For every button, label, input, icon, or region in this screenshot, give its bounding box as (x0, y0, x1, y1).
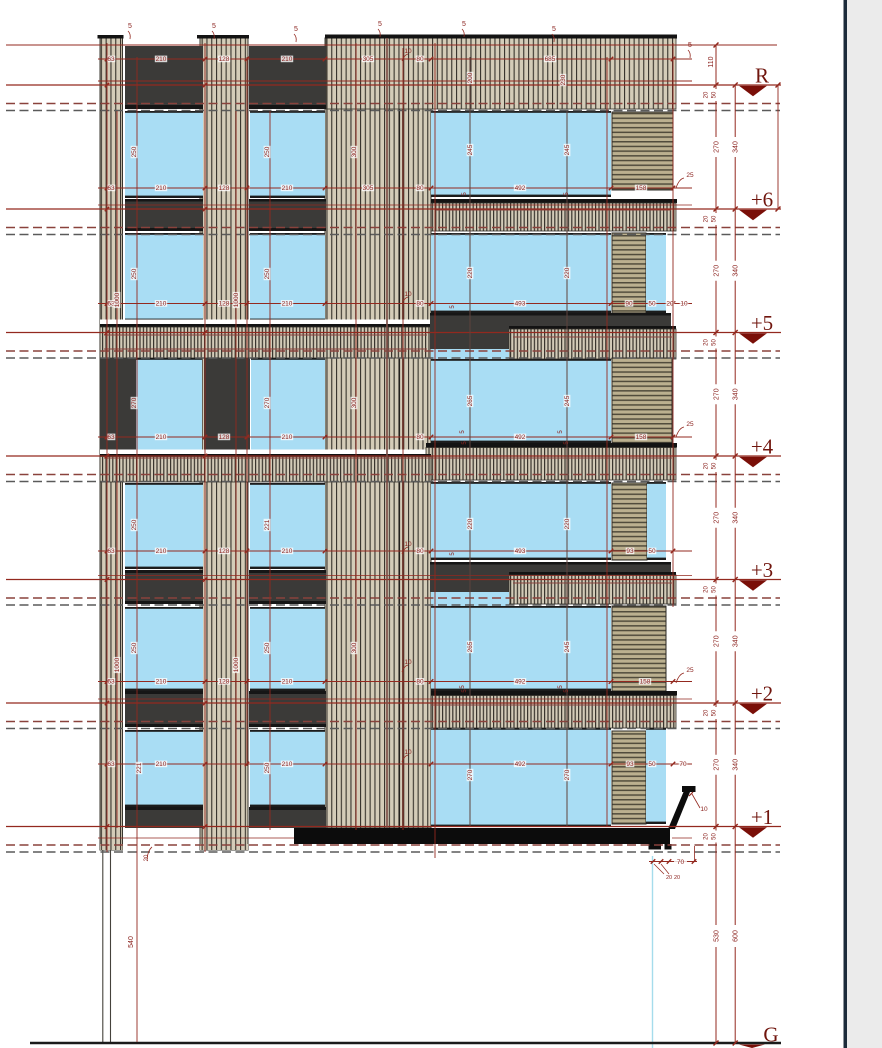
svg-text:+1: +1 (751, 805, 773, 829)
svg-text:80: 80 (416, 301, 424, 308)
svg-text:+5: +5 (751, 311, 773, 335)
svg-text:210: 210 (156, 56, 167, 63)
svg-text:20: 20 (704, 215, 710, 222)
svg-text:128: 128 (219, 548, 230, 555)
svg-text:93: 93 (626, 761, 634, 768)
svg-text:80: 80 (416, 679, 424, 686)
svg-text:1000: 1000 (114, 657, 121, 672)
svg-text:340: 340 (733, 388, 740, 400)
svg-text:50: 50 (712, 586, 718, 593)
svg-text:5: 5 (552, 26, 556, 33)
svg-text:1000: 1000 (233, 657, 240, 672)
svg-text:20: 20 (704, 586, 710, 593)
svg-text:25: 25 (686, 421, 694, 428)
svg-text:93: 93 (626, 548, 634, 555)
svg-text:200: 200 (467, 72, 474, 83)
svg-text:210: 210 (282, 56, 293, 63)
svg-text:340: 340 (733, 512, 740, 524)
svg-text:1000: 1000 (233, 292, 240, 307)
svg-text:270: 270 (714, 512, 721, 524)
svg-text:220: 220 (564, 267, 571, 278)
svg-text:600: 600 (733, 930, 740, 942)
svg-text:210: 210 (282, 301, 293, 308)
svg-text:158: 158 (636, 434, 647, 441)
svg-text:210: 210 (282, 434, 293, 441)
svg-text:540: 540 (128, 936, 135, 948)
svg-text:G: G (763, 1023, 778, 1047)
svg-text:492: 492 (515, 761, 526, 768)
svg-text:128: 128 (219, 185, 230, 192)
svg-text:300: 300 (351, 146, 358, 157)
svg-text:20: 20 (674, 875, 680, 881)
svg-text:305: 305 (363, 185, 374, 192)
svg-text:80: 80 (416, 56, 424, 63)
svg-text:50: 50 (712, 462, 718, 469)
svg-text:10: 10 (404, 541, 412, 548)
svg-text:270: 270 (714, 265, 721, 277)
svg-text:10: 10 (404, 659, 412, 666)
svg-text:+4: +4 (751, 435, 774, 459)
svg-text:128: 128 (219, 301, 230, 308)
svg-text:20: 20 (704, 339, 710, 346)
svg-text:270: 270 (714, 635, 721, 647)
svg-text:220: 220 (467, 267, 474, 278)
svg-text:250: 250 (264, 762, 271, 773)
svg-text:+6: +6 (751, 188, 773, 212)
svg-text:492: 492 (515, 434, 526, 441)
svg-text:250: 250 (131, 519, 138, 530)
svg-text:270: 270 (564, 769, 571, 780)
svg-text:210: 210 (282, 548, 293, 555)
svg-text:50: 50 (712, 91, 718, 98)
svg-text:210: 210 (156, 185, 167, 192)
svg-text:10: 10 (404, 291, 412, 298)
svg-text:5: 5 (378, 21, 382, 28)
svg-text:210: 210 (282, 761, 293, 768)
svg-text:340: 340 (733, 141, 740, 153)
svg-text:245: 245 (564, 395, 571, 406)
svg-text:530: 530 (714, 930, 721, 942)
svg-text:R: R (755, 64, 769, 88)
svg-text:50: 50 (712, 709, 718, 716)
svg-text:493: 493 (515, 301, 526, 308)
svg-text:50: 50 (648, 301, 656, 308)
svg-text:305: 305 (363, 56, 374, 63)
svg-text:270: 270 (714, 759, 721, 771)
svg-text:492: 492 (515, 679, 526, 686)
svg-text:245: 245 (564, 144, 571, 155)
svg-text:50: 50 (712, 339, 718, 346)
svg-text:492: 492 (515, 185, 526, 192)
svg-text:265: 265 (467, 641, 474, 652)
svg-text:+3: +3 (751, 558, 773, 582)
svg-text:5: 5 (128, 23, 132, 30)
svg-text:5: 5 (294, 26, 298, 33)
svg-text:270: 270 (467, 769, 474, 780)
svg-text:50: 50 (712, 833, 718, 840)
svg-text:80: 80 (416, 185, 424, 192)
svg-text:90: 90 (625, 301, 633, 308)
svg-text:210: 210 (282, 679, 293, 686)
svg-text:221: 221 (264, 519, 271, 530)
svg-text:265: 265 (467, 395, 474, 406)
svg-text:20: 20 (704, 833, 710, 840)
svg-text:220: 220 (467, 518, 474, 529)
svg-text:80: 80 (416, 434, 424, 441)
svg-text:221: 221 (136, 762, 143, 773)
svg-text:685: 685 (545, 56, 556, 63)
svg-text:10: 10 (680, 301, 688, 308)
svg-text:63: 63 (107, 434, 115, 441)
svg-text:80: 80 (416, 548, 424, 555)
svg-text:210: 210 (282, 185, 293, 192)
svg-text:110: 110 (708, 56, 715, 67)
svg-text:63: 63 (107, 56, 115, 63)
svg-text:210: 210 (156, 301, 167, 308)
svg-text:250: 250 (264, 146, 271, 157)
svg-text:50: 50 (648, 548, 656, 555)
svg-text:50: 50 (648, 761, 656, 768)
svg-text:25: 25 (686, 667, 694, 674)
svg-text:158: 158 (636, 185, 647, 192)
svg-text:63: 63 (107, 185, 115, 192)
svg-text:270: 270 (264, 397, 271, 408)
svg-text:300: 300 (351, 642, 358, 653)
svg-text:128: 128 (219, 434, 230, 441)
svg-text:340: 340 (733, 759, 740, 771)
svg-text:50: 50 (712, 215, 718, 222)
svg-text:5: 5 (688, 42, 692, 49)
svg-text:270: 270 (714, 141, 721, 153)
svg-text:25: 25 (686, 172, 694, 179)
svg-text:493: 493 (515, 548, 526, 555)
svg-text:5: 5 (212, 23, 216, 30)
svg-text:300: 300 (351, 397, 358, 408)
svg-text:210: 210 (156, 434, 167, 441)
svg-text:250: 250 (264, 268, 271, 279)
svg-text:340: 340 (733, 265, 740, 277)
svg-text:70: 70 (677, 859, 685, 866)
svg-text:70: 70 (679, 761, 687, 768)
svg-text:230: 230 (560, 74, 567, 85)
svg-text:158: 158 (640, 679, 651, 686)
svg-text:10: 10 (404, 48, 412, 55)
svg-text:63: 63 (107, 761, 115, 768)
svg-text:250: 250 (131, 268, 138, 279)
svg-text:20: 20 (704, 462, 710, 469)
svg-text:250: 250 (131, 642, 138, 653)
svg-text:210: 210 (156, 761, 167, 768)
svg-text:1000: 1000 (114, 292, 121, 307)
svg-text:+2: +2 (751, 682, 773, 706)
svg-text:270: 270 (131, 397, 138, 408)
svg-text:250: 250 (264, 642, 271, 653)
svg-text:10: 10 (700, 806, 708, 813)
svg-text:270: 270 (714, 388, 721, 400)
svg-text:128: 128 (219, 679, 230, 686)
svg-text:5: 5 (462, 21, 466, 28)
svg-text:340: 340 (733, 635, 740, 647)
svg-text:220: 220 (564, 518, 571, 529)
svg-text:210: 210 (156, 548, 167, 555)
svg-text:210: 210 (156, 679, 167, 686)
svg-text:63: 63 (107, 548, 115, 555)
svg-text:250: 250 (131, 146, 138, 157)
svg-text:245: 245 (564, 641, 571, 652)
svg-text:20: 20 (666, 875, 672, 881)
svg-text:245: 245 (467, 144, 474, 155)
svg-text:128: 128 (219, 56, 230, 63)
svg-text:10: 10 (404, 749, 412, 756)
svg-text:20: 20 (704, 91, 710, 98)
svg-text:20: 20 (704, 709, 710, 716)
svg-text:63: 63 (107, 679, 115, 686)
